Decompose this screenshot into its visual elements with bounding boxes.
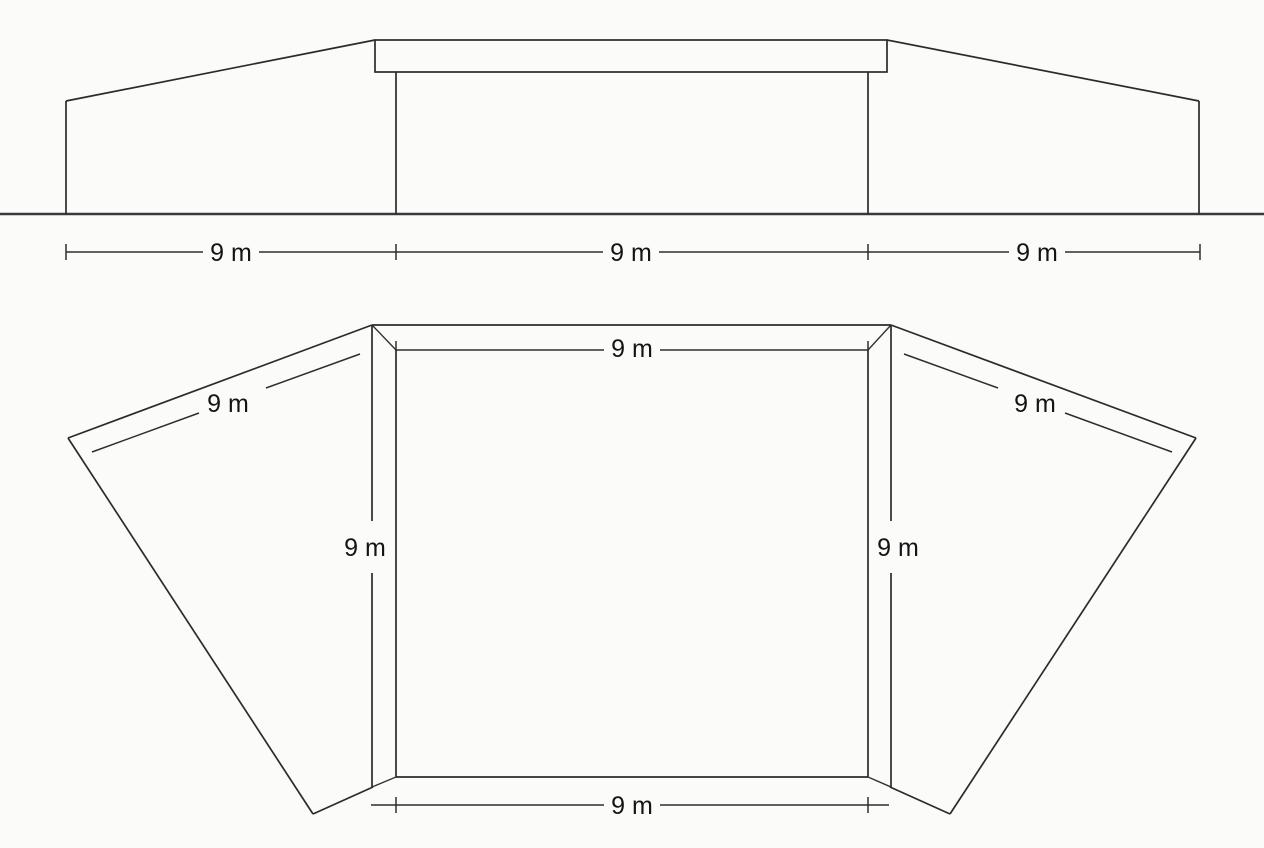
left-wing-dim-label: 9 m — [207, 390, 249, 418]
elevation-dim-label-center: 9 m — [610, 239, 652, 267]
plan-miter-bottom-left — [372, 777, 396, 787]
left-wing-far-edge — [68, 438, 313, 814]
plan-right-wing: 9 m — [890, 325, 1196, 814]
dim-segment — [92, 413, 199, 452]
elevation-left-roof-slope — [66, 40, 375, 101]
right-wing-top-edge — [891, 325, 1196, 438]
plan-right-dim-label: 9 m — [877, 534, 919, 562]
elevation-dim-label-left: 9 m — [210, 239, 252, 267]
plan-miter-top-right — [868, 325, 891, 350]
left-wing-bottom-edge — [313, 787, 373, 814]
right-wing-bottom-edge — [890, 787, 950, 814]
technical-drawing-svg: 9 m 9 m 9 m — [0, 0, 1264, 848]
elevation-dim-label-right: 9 m — [1016, 239, 1058, 267]
elevation-view: 9 m 9 m 9 m — [0, 40, 1264, 267]
plan-miter-top-left — [372, 325, 396, 350]
right-wing-dim-label: 9 m — [1014, 390, 1056, 418]
right-wing-far-edge — [950, 438, 1196, 814]
plan-left-wing: 9 m — [68, 325, 373, 814]
elevation-dimension-line: 9 m 9 m 9 m — [66, 239, 1200, 267]
elevation-right-roof-slope — [887, 40, 1199, 101]
plan-left-dim-label: 9 m — [344, 534, 386, 562]
plan-top-dim-label: 9 m — [611, 335, 653, 363]
plan-top-dimension: 9 m — [396, 335, 868, 363]
plan-view: 9 m 9 m 9 m 9 m 9 m — [68, 325, 1196, 820]
plan-bottom-dim-label: 9 m — [611, 792, 653, 820]
dim-segment — [1065, 413, 1172, 452]
elevation-roof-slab — [375, 40, 887, 72]
left-wing-top-edge — [68, 325, 372, 438]
drawing-canvas: 9 m 9 m 9 m — [0, 0, 1264, 848]
plan-bottom-dimension: 9 m — [371, 792, 889, 820]
plan-miter-bottom-right — [868, 777, 891, 787]
